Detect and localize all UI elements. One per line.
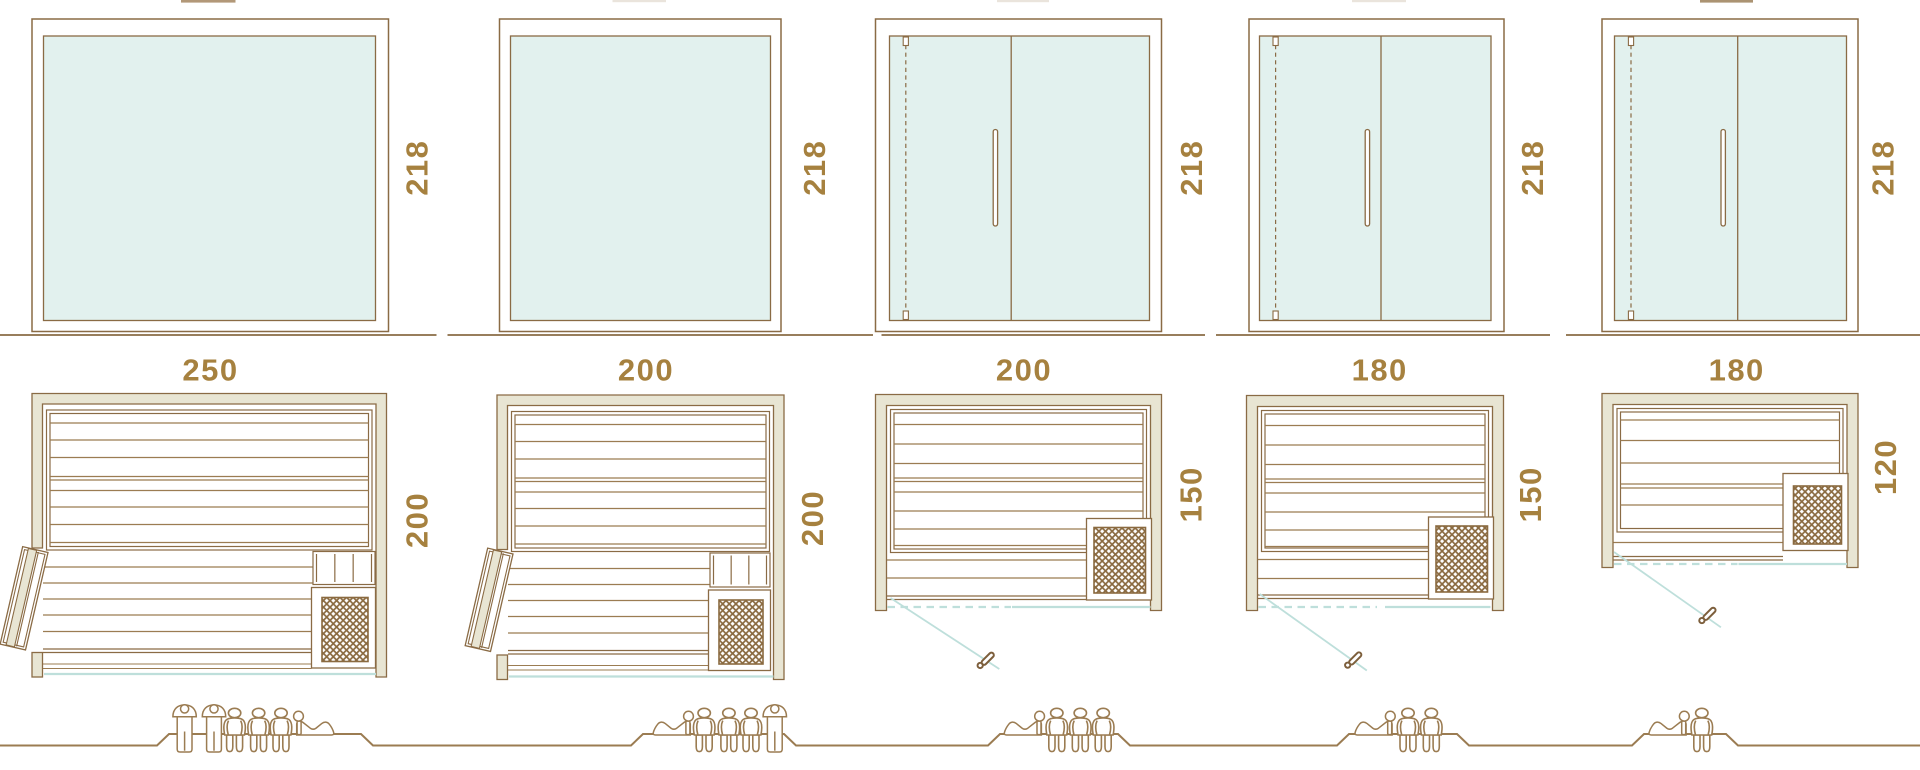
svg-text:200: 200 bbox=[996, 353, 1052, 388]
svg-text:218: 218 bbox=[1865, 140, 1900, 196]
svg-text:180: 180 bbox=[1352, 353, 1408, 388]
svg-text:150: 150 bbox=[1173, 466, 1208, 522]
svg-text:218: 218 bbox=[797, 140, 832, 196]
svg-text:200: 200 bbox=[618, 353, 674, 388]
svg-text:218: 218 bbox=[1174, 140, 1209, 196]
svg-text:218: 218 bbox=[1515, 140, 1550, 196]
svg-text:250: 250 bbox=[182, 353, 238, 388]
svg-text:120: 120 bbox=[1868, 439, 1903, 495]
svg-text:200: 200 bbox=[399, 492, 434, 548]
svg-text:150: 150 bbox=[1513, 466, 1548, 522]
svg-text:218: 218 bbox=[399, 140, 434, 196]
svg-text:180: 180 bbox=[1709, 353, 1765, 388]
svg-text:200: 200 bbox=[795, 490, 830, 546]
